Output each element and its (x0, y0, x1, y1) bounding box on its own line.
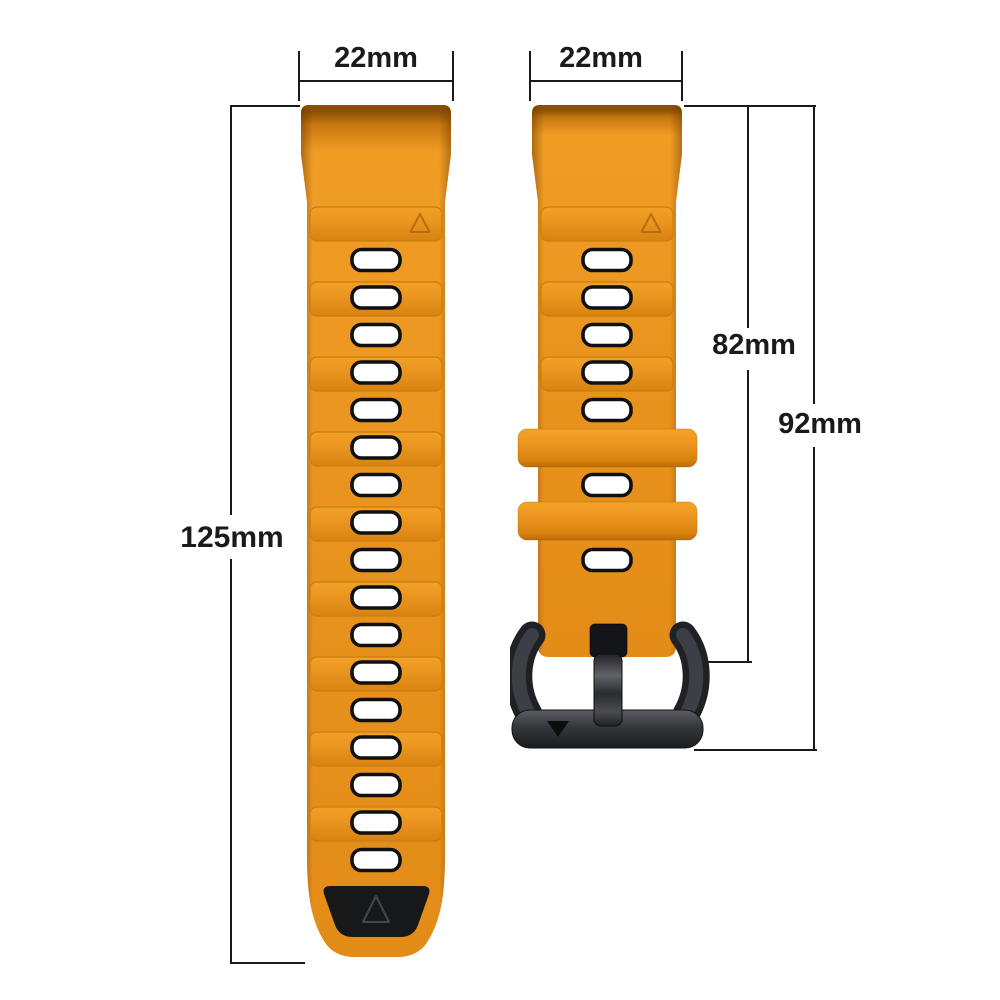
left-strap-holes (352, 250, 400, 871)
left-strap (299, 104, 453, 962)
buckle-tang-shaft (594, 654, 622, 726)
left-length-line-lower (230, 559, 232, 964)
strap-hole (583, 475, 631, 496)
strap-hole (352, 662, 400, 683)
total-length-line-lower (813, 447, 815, 751)
strap-hole (352, 850, 400, 871)
strap-hole (352, 475, 400, 496)
strap-hole (352, 550, 400, 571)
right-width-dimension-line (529, 80, 683, 82)
left-width-tick-end (452, 51, 454, 101)
left-length-tick-top (230, 105, 300, 107)
left-length-tick-bottom (230, 962, 305, 964)
watch-strap-dimension-diagram: 22mm 22mm 125mm 82mm 92mm (0, 0, 1000, 1000)
keeper-loop (518, 502, 697, 540)
strap-hole (583, 325, 631, 346)
strap-hole (352, 587, 400, 608)
strap-hole (352, 812, 400, 833)
strap-hole (352, 287, 400, 308)
left-width-label: 22mm (298, 42, 454, 75)
strap-length-label: 82mm (692, 329, 816, 362)
strap-hole (583, 362, 631, 383)
strap-tip-patch (324, 886, 430, 937)
strap-hole (352, 325, 400, 346)
strap-hole (352, 775, 400, 796)
strap-ridge-segment (310, 207, 442, 241)
strap-hole (352, 625, 400, 646)
strap-hole (583, 250, 631, 271)
strap-hole (352, 512, 400, 533)
strap-length-line-lower (747, 370, 749, 663)
strap-hole (352, 250, 400, 271)
strap-ridge-segment (541, 207, 673, 241)
keeper-loop (518, 429, 697, 467)
left-length-line-upper (230, 105, 232, 515)
right-width-tick-end (681, 51, 683, 101)
strap-hole (583, 400, 631, 421)
left-width-dimension-line (298, 80, 454, 82)
buckle-tang-head (590, 624, 627, 657)
buckle (512, 624, 703, 748)
total-length-tick-bottom (694, 749, 817, 751)
strap-hole (352, 700, 400, 721)
total-length-line-upper (813, 105, 815, 404)
strap-hole (583, 287, 631, 308)
right-width-tick-start (529, 51, 531, 101)
strap-hole (352, 400, 400, 421)
strap-hole (352, 737, 400, 758)
strap-hole (352, 362, 400, 383)
right-strap (510, 104, 710, 754)
strap-hole (352, 437, 400, 458)
left-width-tick-start (298, 51, 300, 101)
strap-length-line-upper (747, 105, 749, 328)
strap-hole (583, 550, 631, 571)
right-width-label: 22mm (524, 42, 678, 75)
total-length-label: 92mm (758, 408, 882, 441)
left-length-label: 125mm (160, 521, 304, 556)
